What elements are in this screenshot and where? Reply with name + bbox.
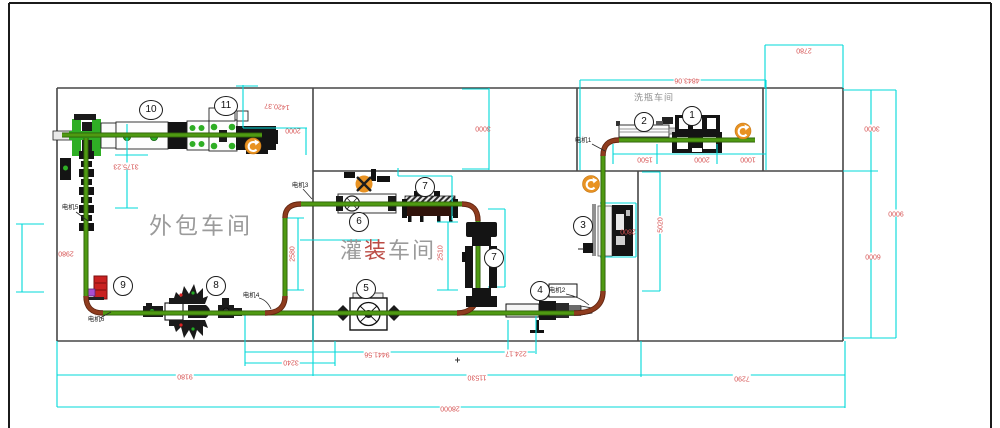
leader-lines (76, 144, 605, 318)
machine-4-labeler (506, 284, 592, 333)
conveyor-corner-curves (86, 140, 619, 313)
dimension-lines (16, 45, 896, 408)
rotation-icon (245, 138, 261, 154)
floor-plan-drawing (0, 0, 1000, 428)
machine-7-inspector-vertical (462, 222, 500, 307)
floor-plan-canvas: 123456778910111420.3720003175.2329802580… (0, 0, 1000, 428)
rotation-icon (735, 123, 751, 139)
reference-mark (455, 358, 460, 363)
rotation-icon (583, 176, 600, 193)
left-vertical-conveyor (60, 151, 94, 231)
conveyor-path (62, 135, 755, 313)
